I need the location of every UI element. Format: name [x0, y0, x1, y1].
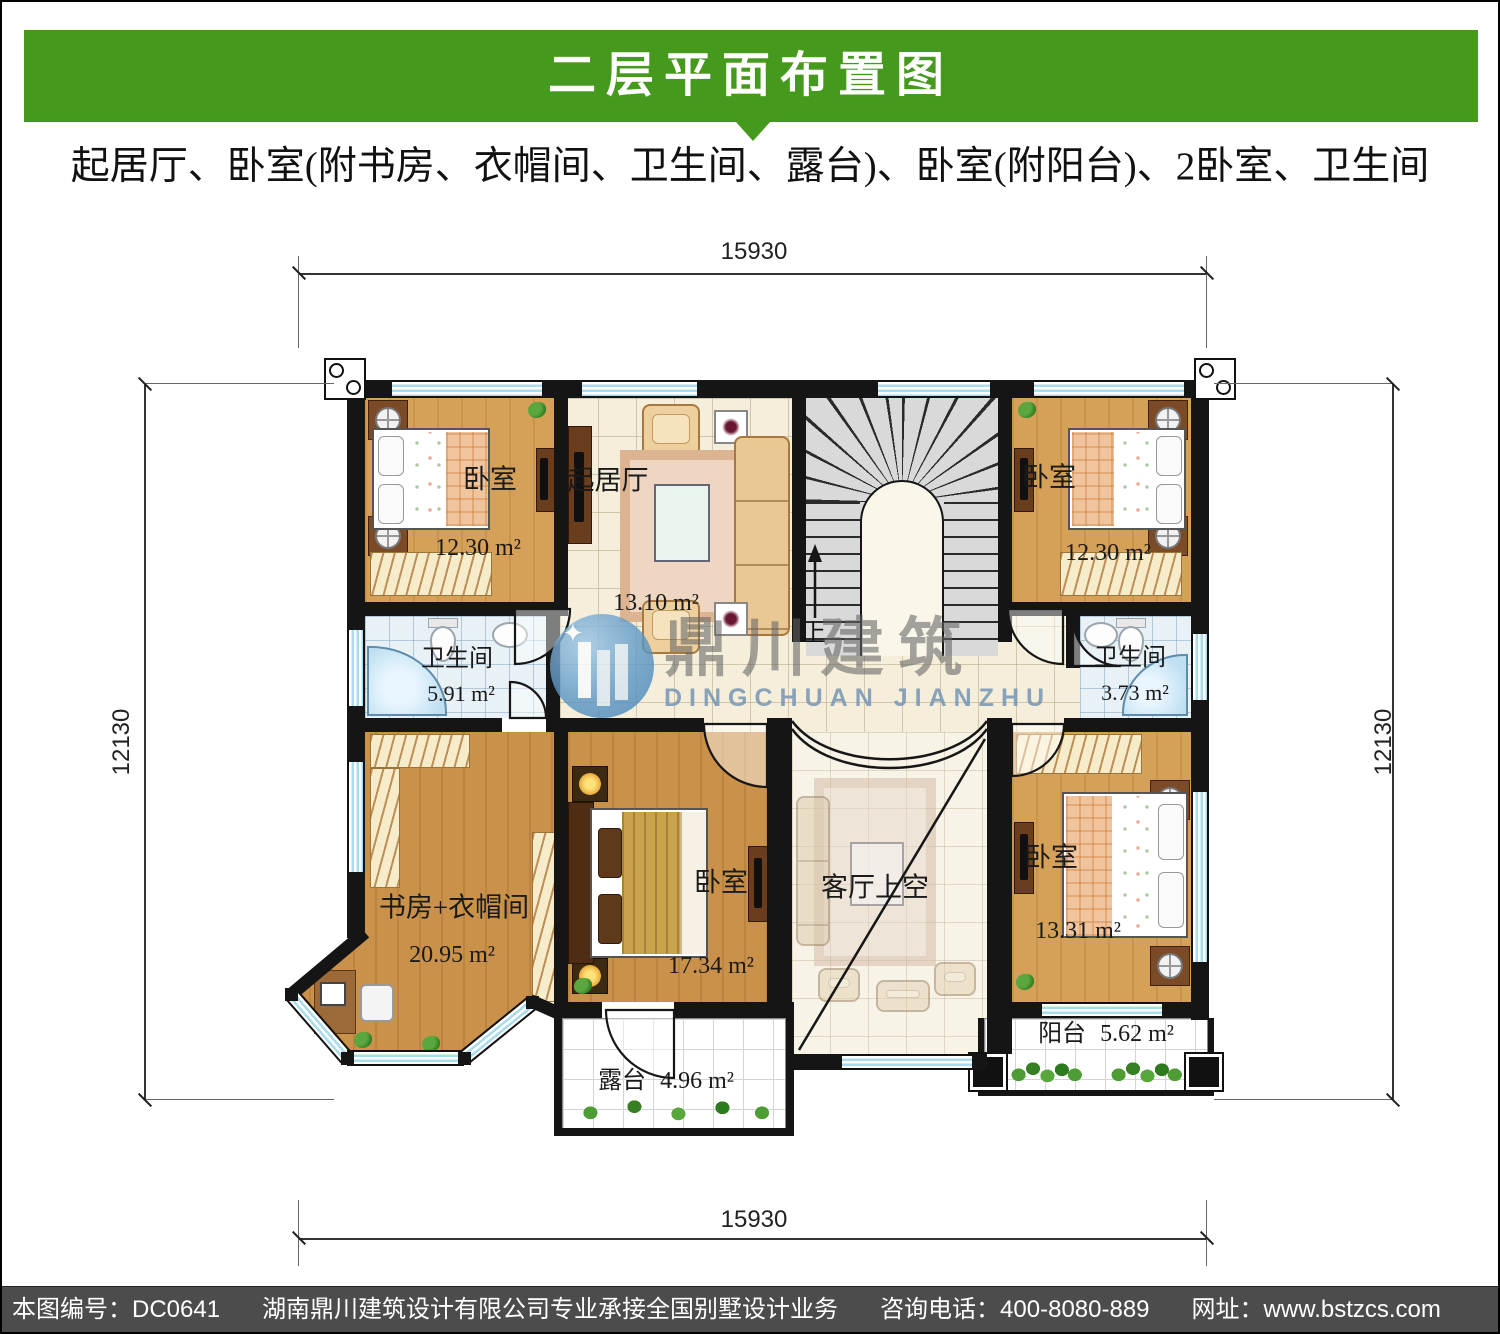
door-arc — [704, 724, 767, 787]
extension-line — [1206, 1200, 1207, 1266]
watermark-logo-icon — [550, 614, 654, 718]
room-label-terrace: 露台4.96 m² — [598, 1069, 734, 1093]
room-area-bedroom-tr: 12.30 m² — [1065, 541, 1151, 565]
footer-company: 湖南鼎川建筑设计有限公司专业承接全国别墅设计业务 — [262, 1298, 838, 1322]
room-label-living-void: 客厅上空 — [821, 875, 929, 902]
room-label-balcony: 阳台5.62 m² — [1038, 1022, 1174, 1046]
room-label-master-bedroom: 卧室 — [694, 870, 748, 897]
room-area-bath-right: 3.73 m² — [1101, 682, 1169, 704]
page: 二层平面布置图 起居厅、卧室(附书房、衣帽间、卫生间、露台)、卧室(附阳台)、2… — [0, 0, 1500, 1334]
room-label-bedroom-tl: 卧室 — [463, 467, 517, 494]
extension-line — [1214, 383, 1393, 384]
room-label-bedroom-br: 卧室 — [1024, 845, 1078, 872]
watermark-en: DINGCHUAN JIANZHU — [664, 686, 1051, 711]
room-area-master-bedroom: 17.34 m² — [668, 954, 754, 978]
floor-plan: 卧室 12.30 m² 起居厅 13.10 m² 卧室 12.30 m² 卫生间… — [2, 2, 1500, 1334]
room-area-study: 20.95 m² — [409, 943, 495, 967]
room-label-bath-right: 卫生间 — [1094, 646, 1166, 670]
dimension-line — [298, 1238, 1206, 1240]
dimension-line — [298, 273, 1206, 275]
room-area-bedroom-tl: 12.30 m² — [435, 536, 521, 560]
door-arc — [1008, 609, 1063, 664]
dimension-bottom: 15930 — [694, 1208, 814, 1232]
room-label-bedroom-tr: 卧室 — [1022, 465, 1076, 492]
extension-line — [144, 1099, 334, 1100]
dimension-line — [1392, 384, 1394, 1100]
room-label-study: 书房+衣帽间 — [379, 895, 529, 922]
door-arc — [510, 682, 546, 718]
room-label-living: 起居厅 — [568, 468, 649, 495]
footer-bar: 本图编号：DC0641 湖南鼎川建筑设计有限公司专业承接全国别墅设计业务 咨询电… — [2, 1286, 1498, 1332]
void-opening-curve — [792, 729, 987, 768]
dimension-line — [144, 384, 146, 1100]
terrace-name: 露台 — [598, 1068, 646, 1094]
extension-line — [298, 1200, 299, 1266]
room-label-bath-left: 卫生间 — [421, 647, 493, 671]
footer-phone: 咨询电话：400-8080-889 — [880, 1298, 1149, 1322]
door-arc — [1012, 724, 1064, 776]
balcony-area: 5.62 m² — [1100, 1021, 1174, 1047]
balcony-name: 阳台 — [1038, 1021, 1086, 1047]
terrace-area: 4.96 m² — [660, 1068, 734, 1094]
dimension-left: 12130 — [110, 682, 134, 802]
watermark-cn: 鼎川建筑 — [664, 616, 976, 680]
footer-website: 网址：www.bstzcs.com — [1192, 1298, 1441, 1322]
dimension-top: 15930 — [694, 240, 814, 264]
footer-plan-no: 本图编号：DC0641 — [12, 1298, 220, 1322]
stair-up-arrowhead — [808, 544, 822, 562]
extension-line — [144, 383, 334, 384]
room-area-bath-left: 5.91 m² — [427, 683, 495, 705]
extension-line — [1214, 1099, 1393, 1100]
room-area-bedroom-br: 13.31 m² — [1035, 919, 1121, 943]
